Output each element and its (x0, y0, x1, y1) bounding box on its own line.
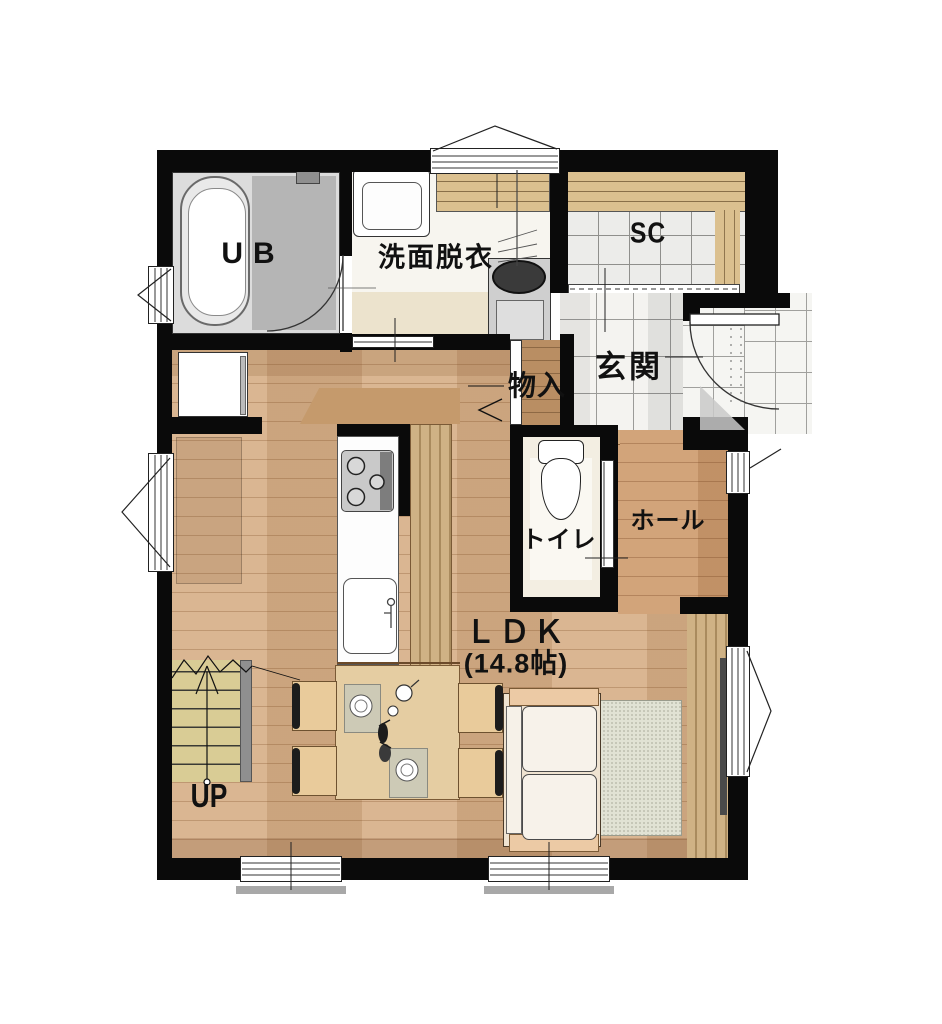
room-label-toilet: トイレ (522, 520, 597, 555)
window-left-ldk (148, 453, 174, 572)
room-label-ldk-size: (14.8帖) (464, 642, 569, 681)
window-right-ldk (726, 646, 750, 777)
chair-bottom-right-back (495, 750, 503, 796)
room-label-up: UP (191, 777, 228, 815)
window-bottom-2 (488, 856, 610, 882)
washroom-shelf (436, 170, 550, 212)
sofa-cushion-2 (522, 774, 597, 840)
porch-tile-outer (745, 293, 812, 434)
casement-triangle-right-ldk (747, 651, 771, 772)
hall-window-vent-line (750, 449, 781, 468)
window-hall-right (726, 451, 750, 494)
toilet-sliding-door (601, 460, 614, 568)
window-sill-1 (236, 886, 346, 894)
bath-faucet (296, 170, 320, 184)
wall-hall-bottom (680, 597, 748, 614)
window-sill-2 (484, 886, 614, 894)
window-bottom-1 (240, 856, 342, 882)
placemat-1 (344, 684, 381, 733)
chair-top-left-back (292, 683, 300, 729)
kitchen-sink (343, 578, 397, 654)
sofa-armrest-top (509, 688, 599, 706)
stair-stringer (240, 660, 252, 782)
sc-shelf-right (715, 210, 740, 293)
wall-right-upper (745, 150, 778, 308)
wall-washroom-ldk (157, 334, 510, 350)
stove-guard-wall (399, 436, 410, 516)
gas-stove-panel (380, 452, 392, 510)
island-edge-line (337, 662, 460, 664)
ldk-bottom-shadow (172, 838, 728, 858)
room-label-storage: 物入 (508, 364, 566, 404)
bar-counter (410, 424, 452, 668)
staircase (172, 660, 240, 782)
refrigerator (178, 352, 248, 417)
kitchen-counter-shadow (300, 388, 460, 424)
room-label-hall: ホール (631, 501, 706, 536)
room-label-entrance: 玄関 (595, 342, 663, 387)
toilet-wall-left (510, 425, 523, 612)
room-label-ub: UB (221, 237, 284, 271)
window-left-bath (148, 266, 174, 324)
wall-entrance-bottom-stub (683, 417, 748, 450)
ub-door-gap (340, 255, 352, 333)
washing-machine-drum (492, 260, 546, 294)
sofa-cushion-1 (522, 706, 597, 772)
room-label-washroom: 洗面脱衣 (378, 236, 494, 275)
room-label-sc: SC (630, 218, 666, 251)
chair-top-right-back (495, 685, 503, 731)
porch-tile-inner (683, 308, 745, 418)
chair-bottom-left-back (292, 748, 300, 794)
refrigerator-door-line (240, 356, 246, 415)
washroom-floor-lower (352, 292, 488, 334)
wall-ub-washroom-upper (340, 150, 352, 256)
wall-porch-stub (683, 293, 700, 321)
placemat-2 (389, 748, 428, 798)
window-top-washroom (430, 148, 560, 174)
rug (597, 700, 682, 836)
sofa-backrest (506, 706, 522, 834)
counter-wall-stub (170, 417, 262, 434)
washroom-sliding-door (352, 336, 434, 348)
floor-plan-canvas: UB 洗面脱衣 SC 玄関 物入 トイレ ホール ＬＤＫ (14.8帖) UP (0, 0, 942, 1024)
washbasin-bowl (362, 182, 422, 230)
desk-shadow (176, 437, 242, 584)
sc-shelf-top (568, 172, 745, 212)
